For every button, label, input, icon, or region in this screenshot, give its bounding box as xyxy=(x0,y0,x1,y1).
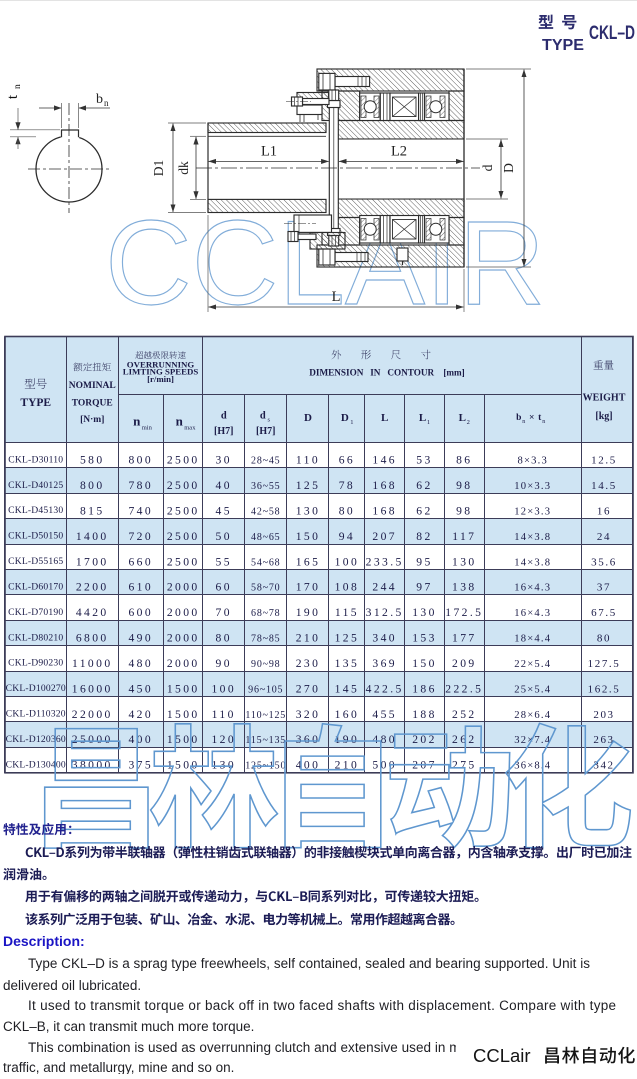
svg-text:24: 24 xyxy=(597,531,611,543)
svg-text:130: 130 xyxy=(452,555,477,568)
svg-text:94: 94 xyxy=(339,530,355,543)
svg-text:n: n xyxy=(522,419,525,425)
svg-text:12×3.3: 12×3.3 xyxy=(514,506,551,517)
svg-text:100: 100 xyxy=(211,682,236,695)
svg-text:230: 230 xyxy=(296,657,321,670)
svg-text:[H7]: [H7] xyxy=(214,426,233,437)
svg-text:400: 400 xyxy=(128,733,153,746)
svg-text:CKL-D110320: CKL-D110320 xyxy=(6,709,66,720)
svg-text:[kg]: [kg] xyxy=(595,411,612,422)
svg-text:n: n xyxy=(176,414,184,429)
svg-text:40: 40 xyxy=(216,479,232,492)
svg-text:210: 210 xyxy=(296,632,321,645)
svg-text:800: 800 xyxy=(80,479,105,492)
svg-text:D: D xyxy=(304,412,312,424)
svg-text:53: 53 xyxy=(416,454,432,467)
svg-text:165: 165 xyxy=(296,555,321,568)
svg-text:1500: 1500 xyxy=(167,708,200,721)
svg-text:720: 720 xyxy=(128,530,153,543)
svg-text:2500: 2500 xyxy=(167,479,200,492)
svg-text:108: 108 xyxy=(335,581,360,594)
svg-text:n: n xyxy=(104,98,109,108)
svg-text:580: 580 xyxy=(80,454,105,467)
svg-text:11000: 11000 xyxy=(72,657,113,670)
svg-text:80: 80 xyxy=(216,632,232,645)
svg-text:25×5.4: 25×5.4 xyxy=(514,684,551,695)
svg-text:dk: dk xyxy=(176,161,191,175)
svg-text:16000: 16000 xyxy=(72,682,113,695)
svg-text:2000: 2000 xyxy=(167,657,200,670)
svg-text:2000: 2000 xyxy=(167,606,200,619)
svg-text:780: 780 xyxy=(128,479,153,492)
svg-text:244: 244 xyxy=(372,581,397,594)
svg-text:480: 480 xyxy=(372,733,397,746)
svg-text:16: 16 xyxy=(597,505,611,517)
svg-text:×: × xyxy=(529,413,534,423)
svg-text:Description:: Description: xyxy=(3,933,85,949)
svg-text:D: D xyxy=(341,412,349,424)
svg-text:54~68: 54~68 xyxy=(251,557,280,568)
svg-text:1: 1 xyxy=(350,419,353,426)
svg-text:190: 190 xyxy=(296,606,321,619)
svg-text:Type CKL–D is a sprag type fre: Type CKL–D is a sprag type freewheels, s… xyxy=(28,956,590,971)
svg-text:traffic, and metallurgy, mine: traffic, and metallurgy, mine and so on. xyxy=(3,1060,234,1074)
svg-text:740: 740 xyxy=(128,504,153,517)
svg-text:n: n xyxy=(542,419,545,425)
svg-text:80: 80 xyxy=(597,633,611,645)
svg-text:170: 170 xyxy=(296,581,321,594)
svg-text:22×5.4: 22×5.4 xyxy=(514,659,551,670)
svg-text:2000: 2000 xyxy=(167,632,200,645)
svg-text:98: 98 xyxy=(456,479,472,492)
svg-text:CKL-D55165: CKL-D55165 xyxy=(8,556,63,567)
svg-text:82: 82 xyxy=(416,530,432,543)
svg-text:48~65: 48~65 xyxy=(251,532,280,543)
svg-text:340: 340 xyxy=(372,632,397,645)
svg-text:n: n xyxy=(13,84,23,89)
svg-text:222.5: 222.5 xyxy=(445,682,483,695)
svg-text:127.5: 127.5 xyxy=(588,658,621,670)
svg-text:max: max xyxy=(184,425,196,432)
svg-text:L: L xyxy=(459,412,466,424)
svg-text:L1: L1 xyxy=(261,144,277,160)
svg-text:270: 270 xyxy=(296,682,321,695)
svg-text:35.6: 35.6 xyxy=(591,556,617,568)
svg-text:8×3.3: 8×3.3 xyxy=(517,456,548,467)
svg-text:CKL-D45130: CKL-D45130 xyxy=(8,505,63,516)
svg-text:TYPE: TYPE xyxy=(20,397,51,409)
svg-text:28×6.4: 28×6.4 xyxy=(514,710,551,721)
svg-text:45: 45 xyxy=(216,504,232,517)
svg-text:60: 60 xyxy=(216,581,232,594)
svg-text:CKL-D50150: CKL-D50150 xyxy=(8,531,63,542)
svg-text:203: 203 xyxy=(593,709,614,721)
svg-text:2500: 2500 xyxy=(167,530,200,543)
svg-text:4420: 4420 xyxy=(76,606,109,619)
svg-text:90~98: 90~98 xyxy=(251,659,280,670)
svg-text:L2: L2 xyxy=(391,144,407,160)
svg-text:CKL-D100270: CKL-D100270 xyxy=(6,683,66,694)
svg-text:815: 815 xyxy=(80,504,105,517)
svg-text:62: 62 xyxy=(416,504,432,517)
svg-text:18×4.4: 18×4.4 xyxy=(514,634,551,645)
svg-text:10×3.3: 10×3.3 xyxy=(514,481,551,492)
svg-text:130: 130 xyxy=(211,759,236,772)
svg-text:600: 600 xyxy=(128,606,153,619)
svg-text:360: 360 xyxy=(296,733,321,746)
svg-text:36~55: 36~55 xyxy=(251,481,280,492)
svg-text:660: 660 xyxy=(128,555,153,568)
svg-text:342: 342 xyxy=(593,760,614,772)
svg-text:209: 209 xyxy=(452,657,477,670)
svg-text:110: 110 xyxy=(296,454,320,467)
svg-text:TYPE: TYPE xyxy=(542,37,584,54)
svg-text:TORQUE: TORQUE xyxy=(72,399,113,409)
svg-text:42~58: 42~58 xyxy=(251,506,280,517)
svg-text:58~70: 58~70 xyxy=(251,583,280,594)
svg-text:186: 186 xyxy=(412,682,437,695)
svg-text:WEIGHT: WEIGHT xyxy=(583,393,626,404)
svg-text:135: 135 xyxy=(335,657,360,670)
svg-text:2: 2 xyxy=(467,419,470,426)
svg-text:delivered oil lubricated.: delivered oil lubricated. xyxy=(3,978,141,993)
svg-text:L: L xyxy=(332,289,341,305)
svg-text:369: 369 xyxy=(372,657,397,670)
svg-text:233.5: 233.5 xyxy=(366,555,404,568)
svg-text:D1: D1 xyxy=(151,160,166,177)
svg-text:188: 188 xyxy=(412,708,437,721)
svg-text:207: 207 xyxy=(372,530,397,543)
svg-text:DIMENSION IN CONTOUR [m: DIMENSION IN CONTOUR [mm] xyxy=(309,368,465,378)
svg-text:28~45: 28~45 xyxy=(251,456,280,467)
svg-text:37: 37 xyxy=(597,582,611,594)
svg-text:6800: 6800 xyxy=(76,632,109,645)
svg-text:138: 138 xyxy=(452,581,477,594)
svg-text:D: D xyxy=(501,163,516,173)
svg-text:36×8.4: 36×8.4 xyxy=(514,761,551,772)
svg-text:150: 150 xyxy=(296,530,321,543)
svg-text:CKL-D70190: CKL-D70190 xyxy=(8,607,63,618)
svg-text:120: 120 xyxy=(211,733,236,746)
svg-text:L: L xyxy=(381,412,388,424)
svg-text:252: 252 xyxy=(452,708,477,721)
svg-text:16×4.3: 16×4.3 xyxy=(514,583,551,594)
svg-text:55: 55 xyxy=(216,555,232,568)
svg-text:202: 202 xyxy=(412,733,437,746)
svg-text:100: 100 xyxy=(335,555,360,568)
svg-text:62: 62 xyxy=(416,479,432,492)
svg-text:25000: 25000 xyxy=(72,733,113,746)
svg-text:320: 320 xyxy=(296,708,321,721)
svg-text:30: 30 xyxy=(216,454,232,467)
svg-text:14×3.8: 14×3.8 xyxy=(514,532,551,543)
svg-text:14×3.8: 14×3.8 xyxy=(514,557,551,568)
svg-text:[r/min]: [r/min] xyxy=(147,374,174,384)
svg-text:[N·m]: [N·m] xyxy=(80,415,104,425)
svg-text:115~135: 115~135 xyxy=(245,735,286,746)
svg-text:b: b xyxy=(516,413,521,423)
svg-text:67.5: 67.5 xyxy=(591,607,617,619)
svg-text:It used to transmit torque or: It used to transmit torque or back off i… xyxy=(28,998,616,1013)
svg-text:117: 117 xyxy=(452,530,476,543)
svg-text:b: b xyxy=(96,92,103,107)
svg-text:2500: 2500 xyxy=(167,454,200,467)
svg-text:CKL-D30110: CKL-D30110 xyxy=(8,454,63,465)
svg-text:2500: 2500 xyxy=(167,555,200,568)
svg-text:146: 146 xyxy=(372,454,397,467)
svg-text:153: 153 xyxy=(412,632,437,645)
svg-text:455: 455 xyxy=(372,708,397,721)
svg-text:CKL-D40125: CKL-D40125 xyxy=(8,480,63,491)
svg-text:150: 150 xyxy=(412,657,437,670)
svg-text:d: d xyxy=(221,411,227,422)
svg-text:115: 115 xyxy=(335,606,359,619)
svg-text:2200: 2200 xyxy=(76,581,109,594)
svg-text:162.5: 162.5 xyxy=(588,683,621,695)
svg-text:160: 160 xyxy=(335,708,360,721)
svg-text:86: 86 xyxy=(456,454,472,467)
svg-text:n: n xyxy=(133,414,141,429)
svg-text:90: 90 xyxy=(216,657,232,670)
svg-text:70: 70 xyxy=(216,606,232,619)
svg-text:610: 610 xyxy=(128,581,153,594)
svg-text:262: 262 xyxy=(452,733,477,746)
svg-text:CKL–D: CKL–D xyxy=(589,22,635,44)
svg-text:1500: 1500 xyxy=(167,733,200,746)
svg-text:130: 130 xyxy=(412,606,437,619)
svg-text:CKL-D80210: CKL-D80210 xyxy=(8,632,63,643)
svg-text:98: 98 xyxy=(456,504,472,517)
svg-text:97: 97 xyxy=(416,581,432,594)
svg-text:1: 1 xyxy=(427,419,430,426)
svg-text:172.5: 172.5 xyxy=(445,606,483,619)
svg-text:CKL-D130400: CKL-D130400 xyxy=(6,759,66,770)
svg-text:125: 125 xyxy=(296,479,321,492)
svg-text:1500: 1500 xyxy=(167,682,200,695)
svg-text:50: 50 xyxy=(216,530,232,543)
svg-text:312.5: 312.5 xyxy=(366,606,404,619)
svg-text:450: 450 xyxy=(128,682,153,695)
svg-text:1400: 1400 xyxy=(76,530,109,543)
svg-text:422.5: 422.5 xyxy=(366,682,404,695)
svg-text:2500: 2500 xyxy=(167,504,200,517)
svg-text:80: 80 xyxy=(339,504,355,517)
svg-text:NOMINAL: NOMINAL xyxy=(69,381,116,391)
svg-text:min: min xyxy=(142,425,153,432)
svg-text:CCLair: CCLair xyxy=(473,1045,531,1066)
svg-text:78: 78 xyxy=(339,479,355,492)
svg-text:168: 168 xyxy=(372,479,397,492)
svg-text:78~85: 78~85 xyxy=(251,634,280,645)
svg-text:16×4.3: 16×4.3 xyxy=(514,608,551,619)
svg-text:490: 490 xyxy=(128,632,153,645)
svg-text:14.5: 14.5 xyxy=(591,480,617,492)
svg-text:95: 95 xyxy=(416,555,432,568)
svg-text:1700: 1700 xyxy=(76,555,109,568)
svg-text:145: 145 xyxy=(335,682,360,695)
svg-text:420: 420 xyxy=(128,708,153,721)
svg-text:96~105: 96~105 xyxy=(248,684,283,695)
svg-text:CKL-D90230: CKL-D90230 xyxy=(8,658,63,669)
svg-text:CKL–B, it can transmit much mo: CKL–B, it can transmit much more torque. xyxy=(3,1019,254,1034)
svg-text:375: 375 xyxy=(128,759,153,772)
svg-text:d: d xyxy=(260,411,266,422)
svg-text:66: 66 xyxy=(339,454,355,467)
svg-text:110: 110 xyxy=(212,708,236,721)
svg-text:168: 168 xyxy=(372,504,397,517)
svg-text:2000: 2000 xyxy=(167,581,200,594)
svg-text:CKL-D120360: CKL-D120360 xyxy=(6,734,66,745)
svg-text:800: 800 xyxy=(128,454,153,467)
svg-text:68~78: 68~78 xyxy=(251,608,280,619)
svg-text:177: 177 xyxy=(452,632,477,645)
svg-text:130: 130 xyxy=(296,504,321,517)
svg-text:d: d xyxy=(480,164,495,171)
svg-text:110~125: 110~125 xyxy=(245,710,286,721)
svg-text:22000: 22000 xyxy=(72,708,113,721)
svg-text:L: L xyxy=(419,412,426,424)
svg-text:125: 125 xyxy=(335,632,360,645)
svg-text:CKL-D60170: CKL-D60170 xyxy=(8,581,63,592)
svg-text:[H7]: [H7] xyxy=(256,426,275,437)
svg-text:480: 480 xyxy=(128,657,153,670)
svg-text:12.5: 12.5 xyxy=(591,455,617,467)
